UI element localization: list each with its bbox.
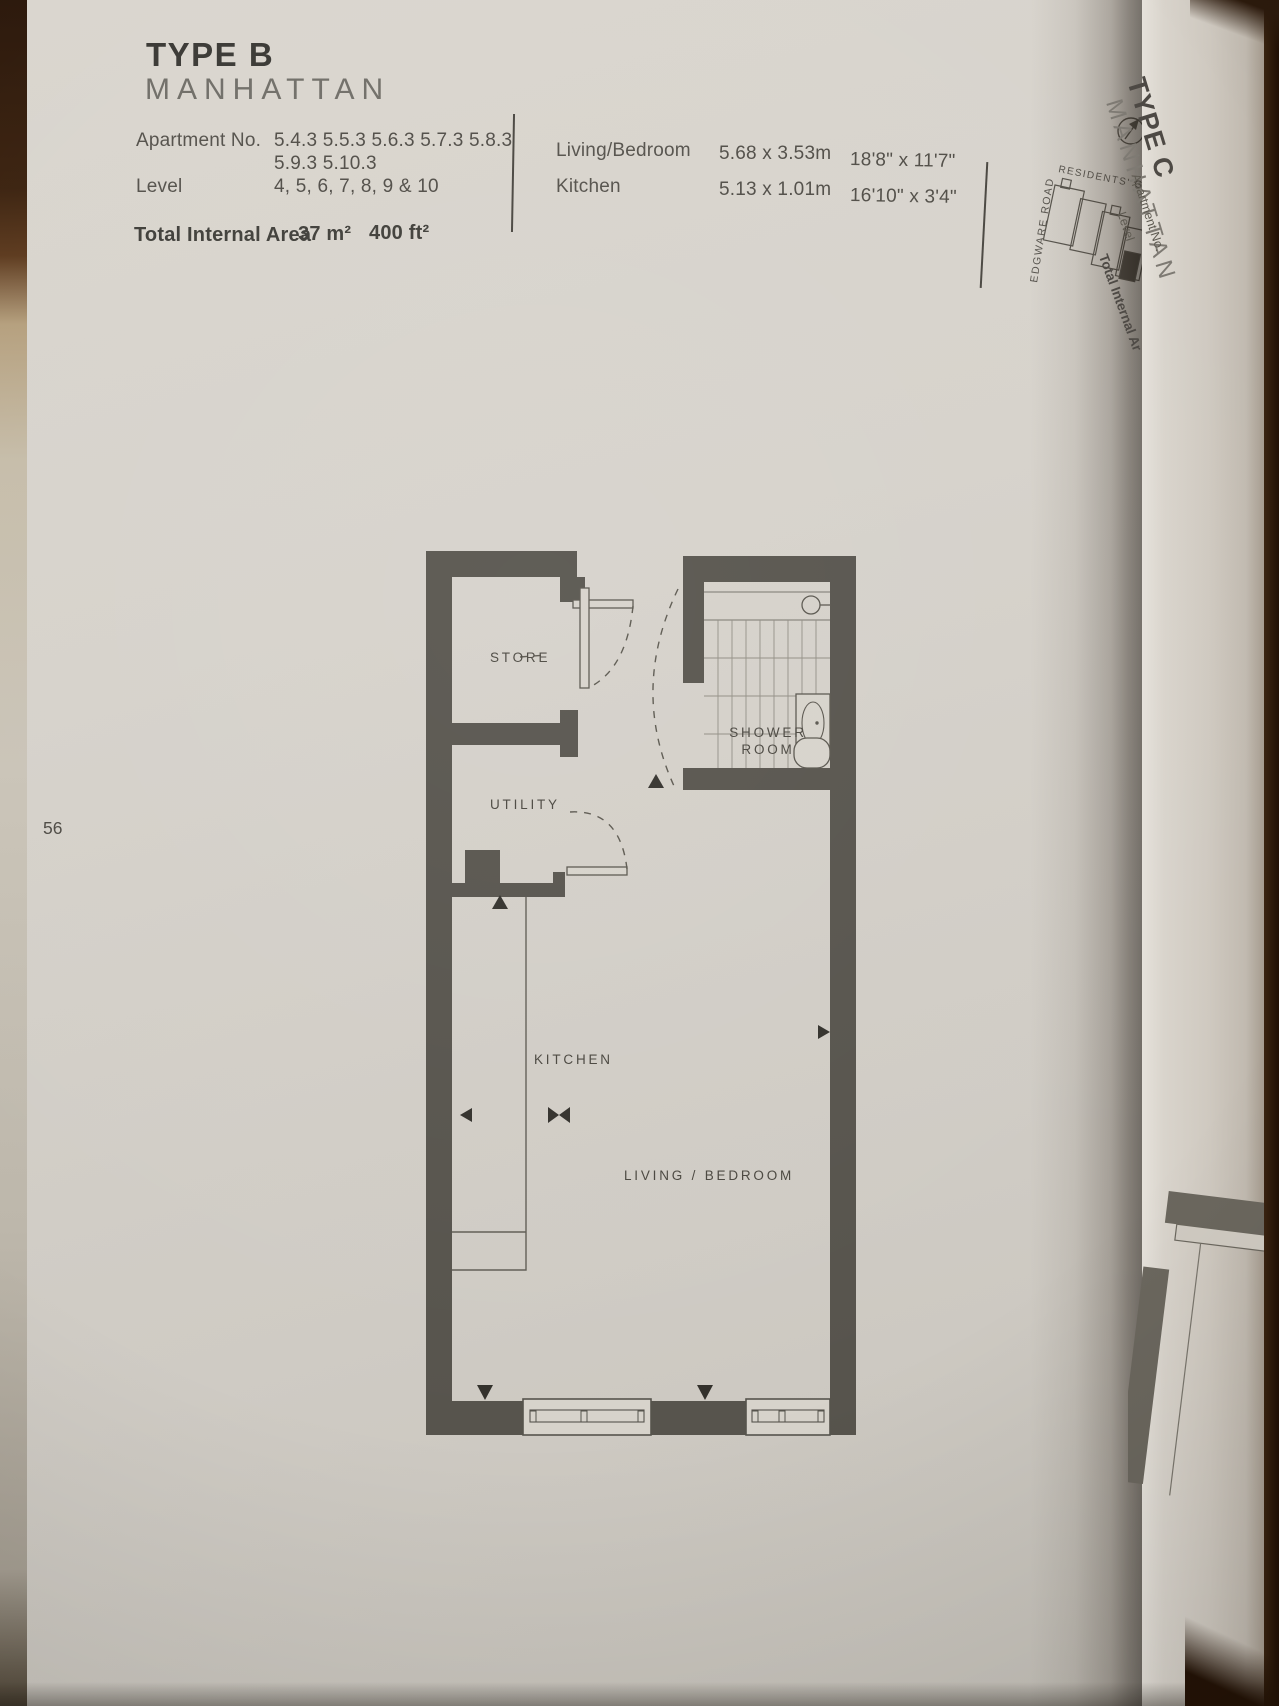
wall-shower-left [683,582,704,683]
room-label-shower-2: ROOM [741,742,794,757]
wall-top-store [426,551,577,577]
floor-plan: STORE UTILITY SHOWER ROOM KITCHEN LIVING… [394,494,868,1446]
wall-shower-bottom [683,768,830,790]
store-door-leaf [580,588,589,688]
marker-left-wall [460,1108,472,1122]
total-area-metric: 37 m² [298,223,351,246]
page-title: TYPE B [146,36,274,74]
window-1 [523,1399,651,1435]
wall-bottom-a [426,1401,523,1435]
page-number: 56 [43,818,62,839]
room-label-living: LIVING / BEDROOM [624,1168,794,1183]
desk-corner-top [1190,0,1279,48]
marker-up-utility [492,895,508,909]
next-page-plan-fragment [1128,1078,1278,1518]
page-subtitle: MANHATTAN [145,73,390,107]
dim-metric-kitchen: 5.13 x 1.01m [719,179,831,201]
desk-corner-bottom [1185,1611,1279,1706]
dim-room-living: Living/Bedroom [556,140,691,162]
marker-bowtie-right [559,1107,570,1123]
marker-right-wall [818,1025,830,1039]
dim-room-kitchen: Kitchen [556,176,621,198]
marker-bowtie-left [548,1107,559,1123]
kitchen-counter [452,897,526,1270]
apartment-no-line1: 5.4.3 5.5.3 5.6.3 5.7.3 5.8.3 [274,130,512,152]
wall-utility [452,883,562,897]
plan-markers [460,774,830,1400]
book-spine-edge [0,0,27,1706]
bottom-shadow [0,1682,1279,1706]
room-label-shower-1: SHOWER [729,725,807,740]
room-label-utility: UTILITY [490,797,560,812]
apartment-no-label: Apartment No. [136,130,261,152]
book-cover-edge [1264,0,1279,1706]
wall-utility-step [553,872,565,897]
apartment-no-line2: 5.9.3 5.10.3 [274,153,377,175]
wall-left [426,551,452,1435]
marker-down-window2 [697,1385,713,1400]
wall-bottom-b [651,1401,746,1435]
level-value: 4, 5, 6, 7, 8, 9 & 10 [274,176,439,198]
room-label-kitchen: KITCHEN [534,1052,613,1067]
dim-metric-living: 5.68 x 3.53m [719,143,831,165]
shower-head-icon [802,596,831,614]
brochure-photo: TYPE B MANHATTAN Apartment No. 5.4.3 5.5… [0,0,1279,1706]
marker-down-window1 [477,1385,493,1400]
total-area-label: Total Internal Area [134,224,311,247]
toilet-icon [794,738,830,768]
wall-store [452,723,564,745]
wall-store-end [560,710,578,757]
page-fold-shadow [1030,0,1142,1706]
window-2 [746,1399,830,1435]
walls [426,551,856,1435]
wall-right [830,556,856,1435]
total-area-imperial: 400 ft² [369,222,429,245]
marker-up-shower [648,774,664,788]
room-label-store: STORE [490,650,550,665]
utility-door-leaf [567,867,627,875]
level-label: Level [136,176,182,198]
